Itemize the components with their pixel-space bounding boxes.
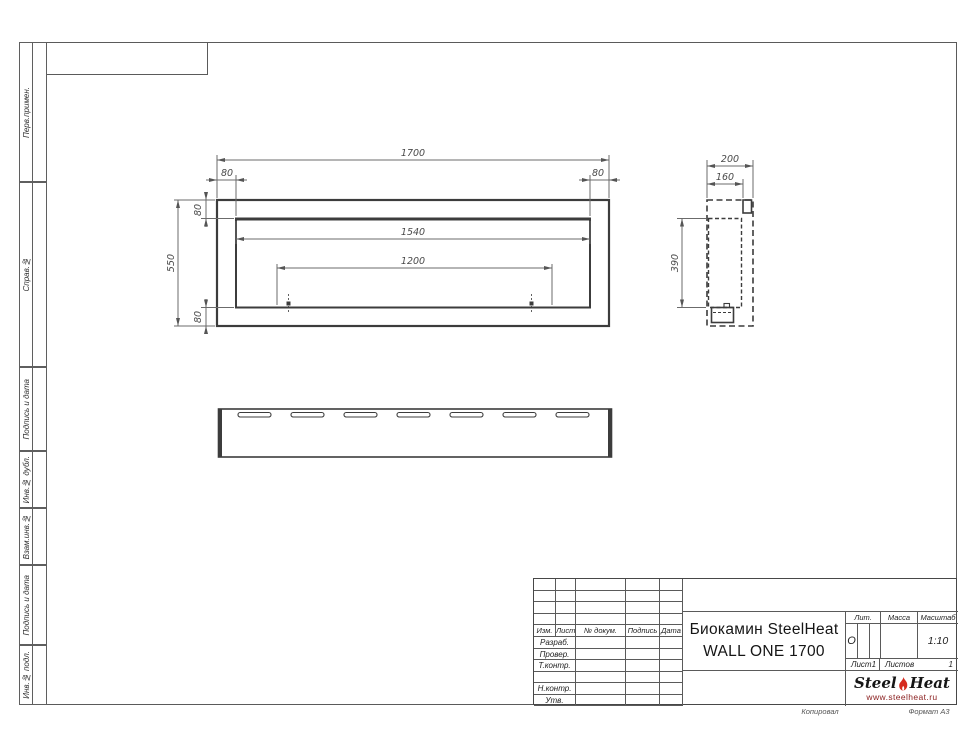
header-doc: № докум. xyxy=(576,625,626,637)
dim-front-offset-top: 80 xyxy=(193,204,204,216)
dim-front-offset-left: 80 xyxy=(221,168,233,179)
mass-header: Масса xyxy=(881,612,918,624)
dim-side-inner-height: 390 xyxy=(670,254,681,272)
flame-icon xyxy=(898,677,909,691)
bottom-center-cell xyxy=(683,671,846,706)
header-sign: Подпись xyxy=(626,625,660,637)
dim-front-mount-span: 1200 xyxy=(401,256,425,267)
sheet-value: 1 xyxy=(872,660,876,669)
mass-value xyxy=(881,624,918,659)
role-razrab: Разраб. xyxy=(534,637,576,649)
dimension-labels: 1700 80 80 550 80 80 1540 1200 200 160 3… xyxy=(166,148,739,323)
steelheat-logo: Steel Heat xyxy=(854,676,950,691)
lit-value: О xyxy=(846,624,858,659)
dim-side-depth: 200 xyxy=(721,154,739,165)
vent-slots xyxy=(238,413,589,418)
sheet-cell: Лист 1 xyxy=(846,659,880,671)
scale-header: Масштаб xyxy=(918,612,958,624)
designation-cell xyxy=(683,579,958,612)
doc-title-line2: WALL ONE 1700 xyxy=(703,641,825,663)
role-nkontr: Н.контр. xyxy=(534,683,576,695)
change-table-header: Изм. Лист № докум. Подпись Дата xyxy=(534,625,683,637)
dim-side-inner-depth: 160 xyxy=(716,172,734,183)
sheets-cell: Листов 1 xyxy=(880,659,958,671)
sheets-value: 1 xyxy=(949,660,953,669)
logo-text-heat: Heat xyxy=(910,676,950,691)
header-date: Дата xyxy=(660,625,683,637)
role-tkontr: Т.контр. xyxy=(534,660,576,672)
dim-front-offset-right: 80 xyxy=(592,168,604,179)
company-logo-cell: Steel Heat www.steelheat.ru xyxy=(846,671,958,706)
document-title-cell: Биокамин SteelHeat WALL ONE 1700 xyxy=(683,612,846,671)
side-view xyxy=(707,200,753,326)
logo-text-steel: Steel xyxy=(854,676,897,691)
lit-cell-3 xyxy=(870,624,881,659)
sheets-label: Листов xyxy=(885,660,914,669)
change-table xyxy=(534,579,683,625)
bottom-view xyxy=(219,409,612,457)
dim-front-inner-width: 1540 xyxy=(401,227,425,238)
copied-label: Копировал xyxy=(775,707,865,716)
dim-front-height: 550 xyxy=(166,254,177,272)
header-list: Лист xyxy=(556,625,576,637)
scale-value: 1:10 xyxy=(918,624,958,659)
role-rows: Разраб. Провер. Т.контр. Н.контр. Утв. xyxy=(534,637,683,706)
doc-title-line1: Биокамин SteelHeat xyxy=(690,619,839,641)
sheet-label: Лист xyxy=(851,660,872,669)
lit-cell-2 xyxy=(858,624,870,659)
lit-header: Лит. xyxy=(846,612,881,624)
format-label: Формат А3 xyxy=(893,707,965,716)
role-utv: Утв. xyxy=(534,695,576,707)
logo-url: www.steelheat.ru xyxy=(866,692,937,702)
drawing-sheet: Перв.примен. Справ.№ Подпись и дата Инв.… xyxy=(0,0,970,749)
front-view-mount-marks xyxy=(287,294,534,312)
title-block: Изм. Лист № докум. Подпись Дата Разраб. … xyxy=(533,578,957,705)
header-izm: Изм. xyxy=(534,625,556,637)
dim-front-offset-bottom: 80 xyxy=(193,311,204,323)
role-prover: Провер. xyxy=(534,649,576,661)
role-empty xyxy=(534,672,576,684)
dim-front-total: 1700 xyxy=(401,148,425,159)
